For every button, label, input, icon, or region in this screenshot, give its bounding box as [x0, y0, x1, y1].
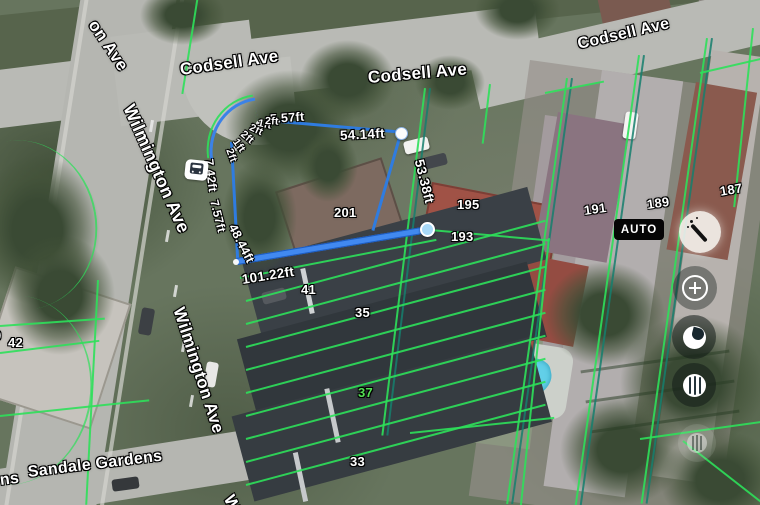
measurement-label: 54.14ft [340, 126, 386, 143]
house-number-189: 189 [646, 194, 670, 212]
house-number-191: 191 [583, 200, 607, 218]
my-location-button[interactable] [673, 266, 717, 310]
auto-badge[interactable]: AUTO [614, 219, 664, 240]
photosphere-button[interactable] [672, 315, 716, 359]
measurement-label: 53.38ft [412, 158, 437, 205]
auto-badge-label: AUTO [621, 224, 657, 236]
satellite-map-view[interactable]: 5.57ft 54.14ft 53.38ft 101.22ft 48.44ft … [0, 0, 760, 505]
measure-vertex-dot[interactable] [395, 127, 408, 140]
house-number-41: 41 [301, 282, 316, 297]
measurement-line-thick[interactable] [236, 226, 428, 265]
house-number-42: 42 [8, 335, 23, 350]
house-number-33: 33 [350, 454, 365, 469]
globe-button[interactable] [672, 363, 716, 407]
street-label-partial-ns: ns [0, 470, 20, 490]
my-location-icon [682, 275, 708, 301]
measure-vertex-dot[interactable] [233, 259, 239, 265]
house-number-201: 201 [334, 205, 357, 220]
house-number-195: 195 [457, 197, 480, 212]
measurement-line [371, 134, 401, 231]
house-number-37: 37 [358, 385, 373, 400]
bus-stop-icon[interactable] [184, 159, 209, 181]
magic-wand-icon [679, 211, 721, 253]
measure-vertex-dot[interactable] [420, 222, 435, 237]
measurement-label-tiny: 2ft [265, 115, 279, 128]
globe-icon [683, 374, 706, 397]
measurement-label: 48.44ft [226, 222, 257, 266]
house-number-193: 193 [451, 229, 474, 244]
globe-faint-button[interactable] [678, 424, 716, 462]
magic-wand-button[interactable] [679, 211, 721, 253]
measurement-label: 7.57ft [207, 198, 229, 234]
house-number-partial-0: 0 [0, 328, 2, 343]
photosphere-icon [683, 326, 706, 349]
house-number-35: 35 [355, 305, 370, 320]
bus-glyph [190, 162, 204, 174]
globe-faint-icon [687, 433, 707, 453]
measurement-label: 101.22ft [241, 264, 295, 287]
